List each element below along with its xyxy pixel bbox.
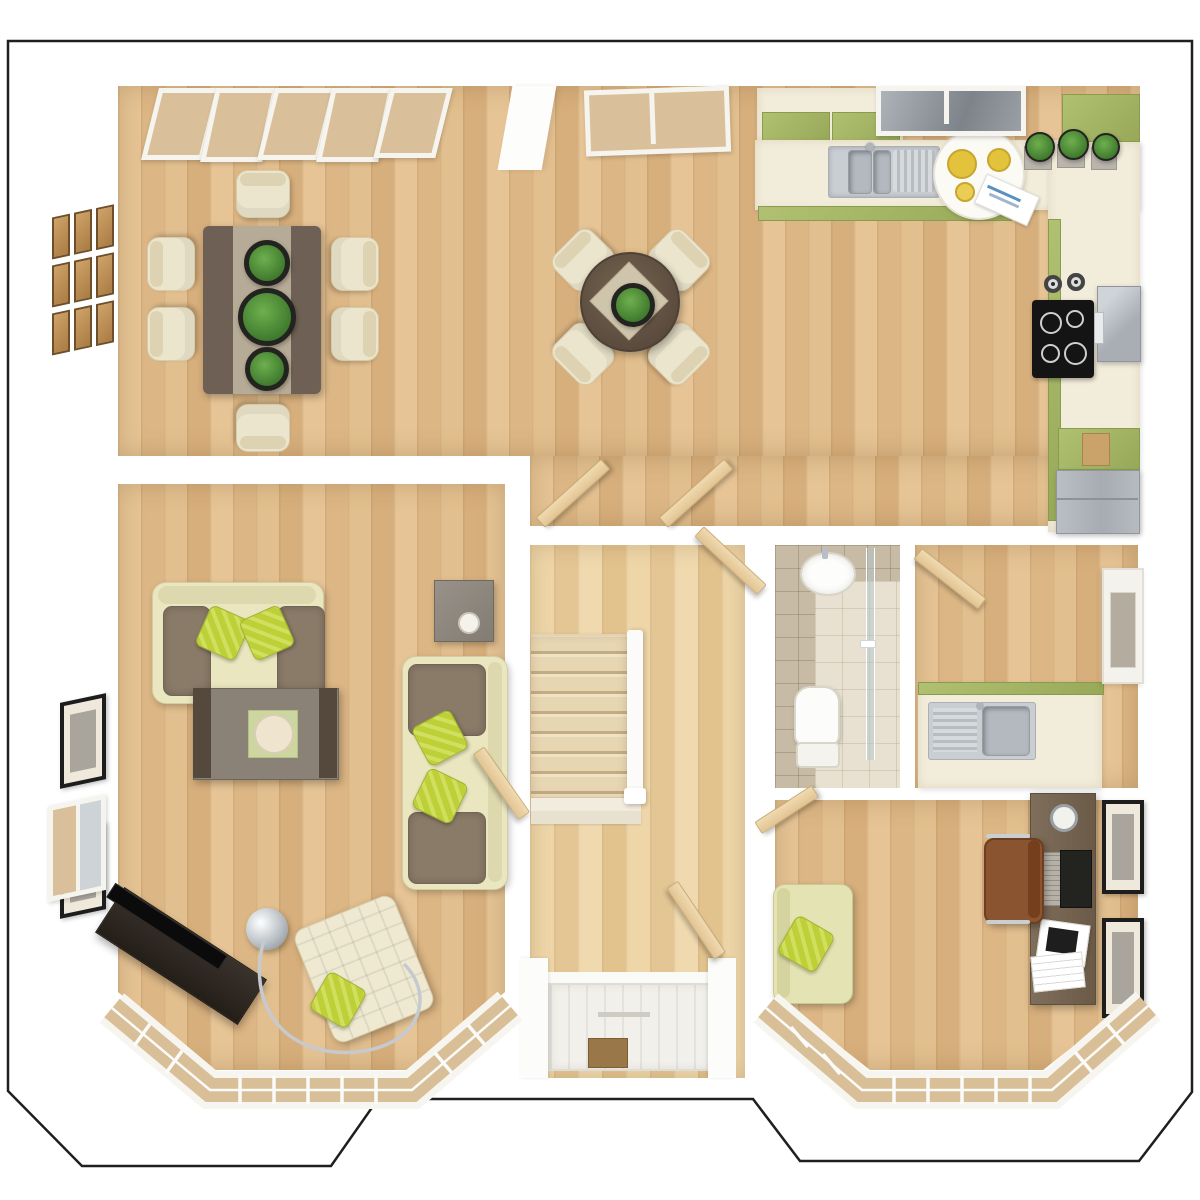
lamp-globe [246, 908, 288, 950]
herb-plant [1058, 129, 1089, 160]
centerpiece-plant [238, 288, 296, 346]
front-door [548, 983, 712, 1071]
fridge-seam [1056, 498, 1138, 500]
staircase [531, 634, 627, 798]
entrance-pier [520, 958, 548, 1078]
dining-chair [147, 307, 195, 361]
picture-photo [1112, 814, 1134, 880]
breakfast-window [584, 85, 731, 156]
herb-plant [1092, 133, 1120, 161]
centerpiece-plant [245, 347, 289, 391]
wash-basin [800, 552, 856, 596]
wall-art-tile [96, 252, 114, 298]
fridge-freezer [1056, 470, 1140, 534]
hob-ring [1041, 344, 1060, 363]
coffee-table-end [193, 688, 211, 778]
chair-back [363, 311, 376, 357]
herb-plant [1025, 132, 1055, 162]
kitchen-window [876, 86, 1026, 136]
back-door-glass [1110, 592, 1136, 668]
chair-arm [986, 834, 1030, 838]
wall-art-tile [74, 305, 92, 351]
wall-art-tile [96, 300, 114, 346]
hob-ring [1064, 342, 1087, 365]
chair-back [363, 241, 376, 287]
wall-art-tile [52, 214, 70, 260]
oven-handle [1094, 312, 1104, 344]
dining-chair [236, 170, 290, 218]
chair-back [240, 173, 286, 186]
canister [1067, 273, 1085, 291]
candle [458, 612, 480, 634]
dining-chair [147, 237, 195, 291]
laptop-screen [1060, 850, 1092, 908]
screen-handle [860, 640, 876, 648]
floorplan-canvas [0, 0, 1200, 1200]
framed-picture [1102, 918, 1144, 1018]
kitchen-window-mullion [944, 88, 949, 124]
sink-drainer [893, 150, 935, 192]
utility-sink-bowl [982, 706, 1030, 756]
chair-back [150, 311, 163, 357]
doormat [588, 1038, 628, 1068]
cutting-board [1082, 433, 1110, 466]
dining-chair [331, 237, 379, 291]
sink-bowl [848, 150, 872, 194]
toilet-cistern [796, 742, 840, 768]
living-side-window [48, 794, 106, 902]
chair-arm [986, 920, 1030, 924]
hob-ring [1066, 310, 1084, 328]
coffee-table-end [319, 688, 337, 778]
dining-chair [236, 404, 290, 452]
papers [1030, 951, 1085, 992]
desk-accessory [1050, 804, 1078, 832]
round-tray [254, 714, 294, 754]
framed-picture [60, 693, 106, 789]
entrance-pier [708, 958, 736, 1078]
table-plant [611, 283, 655, 327]
newel-post [624, 788, 646, 804]
plate-yellow-small [987, 148, 1011, 172]
centerpiece-plant [244, 240, 290, 286]
canister [1044, 275, 1062, 293]
sink-tap [866, 143, 874, 151]
cup-yellow [955, 182, 975, 202]
hob [1032, 300, 1094, 378]
utility-splashback [918, 682, 1104, 695]
chair-back [150, 241, 163, 287]
hob-ring [1040, 312, 1062, 334]
banister [627, 630, 643, 794]
wood-wall-art [52, 203, 122, 368]
wall-art-tile [52, 310, 70, 356]
sink-bowl-small [873, 150, 891, 194]
office-chair-back [1028, 840, 1040, 918]
basin-tap [822, 547, 828, 559]
toilet-bowl [794, 686, 840, 746]
picture-photo [1112, 932, 1134, 1004]
utility-tap [976, 702, 984, 710]
wall-art-tile [52, 262, 70, 308]
dining-chair [331, 307, 379, 361]
chair-back [240, 436, 286, 449]
picture-photo [70, 709, 96, 773]
wall-art-tile [96, 204, 114, 250]
tablet-screen [1045, 927, 1078, 955]
utility-drainer [933, 708, 977, 752]
wall-art-tile [74, 209, 92, 255]
letterbox [598, 1012, 650, 1017]
plate-yellow [947, 149, 977, 179]
wall-art-tile [74, 257, 92, 303]
entrance-step [540, 972, 716, 983]
kitchen-wall-cabinet-green-door [762, 112, 830, 142]
stair-bottom-step [531, 811, 641, 824]
sofa-back [158, 586, 316, 604]
framed-picture [1102, 800, 1144, 894]
shower-glass-screen [866, 548, 875, 760]
